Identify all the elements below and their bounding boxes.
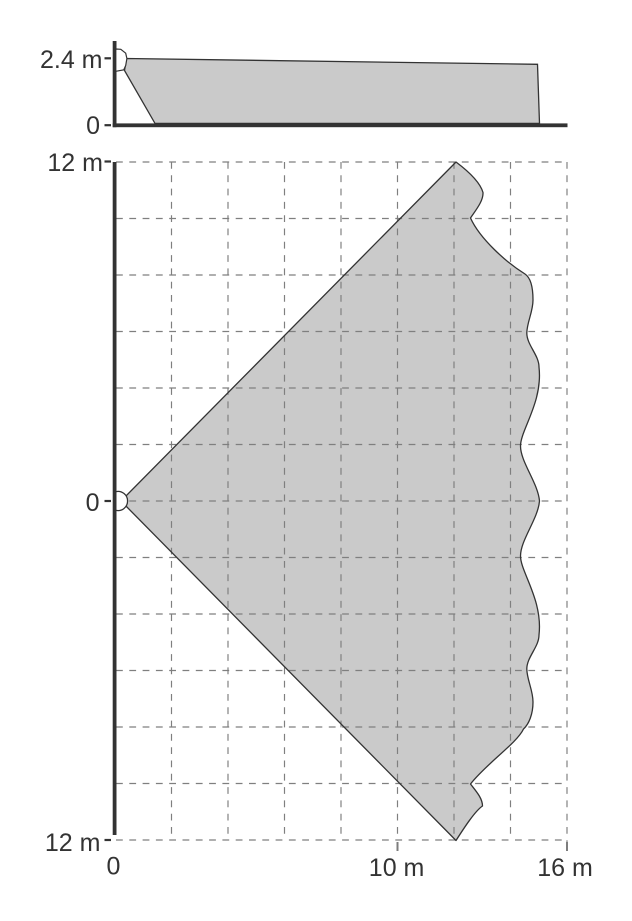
svg-text:10 m: 10 m: [369, 854, 425, 882]
svg-text:16 m: 16 m: [537, 854, 593, 882]
svg-text:2.4 m: 2.4 m: [40, 46, 103, 74]
svg-text:0: 0: [86, 489, 100, 517]
svg-text:12 m: 12 m: [47, 149, 103, 177]
svg-text:12 m: 12 m: [45, 829, 101, 857]
svg-text:0: 0: [86, 112, 100, 140]
svg-text:0: 0: [107, 853, 121, 881]
